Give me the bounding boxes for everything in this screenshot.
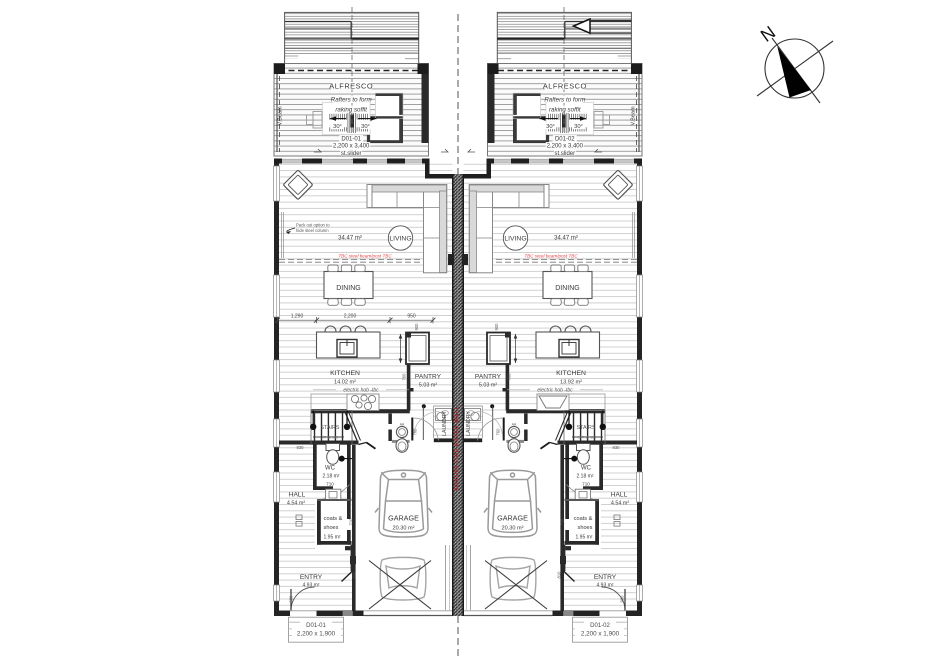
svg-text:Pack out option to: Pack out option to [296, 223, 330, 228]
svg-text:WC: WC [581, 466, 592, 472]
svg-text:LIVING: LIVING [504, 236, 526, 243]
svg-text:20.30 m²: 20.30 m² [501, 526, 523, 532]
svg-text:1,290: 1,290 [291, 314, 304, 320]
svg-text:4.93 m²: 4.93 m² [597, 583, 614, 589]
svg-text:raking soffit: raking soffit [549, 107, 581, 114]
svg-text:34.47 m²: 34.47 m² [338, 236, 362, 242]
svg-text:900: 900 [414, 323, 419, 331]
svg-text:ALFRESCO: ALFRESCO [543, 81, 587, 90]
svg-text:D01-02: D01-02 [555, 137, 575, 143]
svg-text:4.93 m²: 4.93 m² [303, 583, 320, 589]
svg-text:2.18 m²: 2.18 m² [323, 474, 340, 480]
svg-text:4.54 m²: 4.54 m² [287, 501, 305, 507]
svg-text:710: 710 [326, 482, 334, 487]
svg-text:13.92 m²: 13.92 m² [560, 380, 582, 386]
svg-text:electric hob -tbc: electric hob -tbc [343, 388, 379, 394]
svg-text:2,200 x 1,900: 2,200 x 1,900 [297, 630, 336, 637]
svg-text:HALL: HALL [611, 492, 628, 499]
svg-text:30°: 30° [546, 124, 555, 130]
svg-text:760: 760 [402, 373, 407, 381]
svg-text:WC: WC [325, 466, 336, 472]
svg-text:TBC steel beam/post TBC: TBC steel beam/post TBC [524, 254, 578, 259]
svg-text:810: 810 [557, 571, 562, 579]
svg-text:coats &: coats & [324, 516, 343, 522]
svg-text:shoes: shoes [324, 525, 339, 531]
svg-text:830: 830 [613, 445, 621, 450]
svg-text:710: 710 [582, 482, 590, 487]
svg-text:V.Beam: V.Beam [631, 106, 637, 125]
svg-text:5.03 m²: 5.03 m² [479, 383, 497, 389]
svg-text:14R @ 185: 14R @ 185 [320, 436, 338, 440]
svg-text:710: 710 [349, 518, 354, 526]
svg-text:HALL: HALL [289, 492, 306, 499]
svg-text:14.02 m²: 14.02 m² [334, 380, 356, 386]
svg-text:STAIRS: STAIRS [320, 425, 339, 431]
svg-text:AA: AA [511, 423, 516, 427]
svg-text:D01-01: D01-01 [341, 137, 361, 143]
svg-text:GARAGE: GARAGE [497, 514, 528, 523]
svg-text:30°: 30° [574, 124, 583, 130]
svg-text:D01-02: D01-02 [590, 623, 610, 629]
svg-text:D01-01: D01-01 [306, 623, 326, 629]
svg-text:1.95 m²: 1.95 m² [576, 535, 593, 541]
svg-text:LAUNDRY: LAUNDRY [466, 411, 472, 436]
svg-text:710: 710 [560, 518, 565, 526]
svg-text:2,200 x 3,400: 2,200 x 3,400 [547, 144, 584, 150]
svg-text:raking soffit: raking soffit [335, 107, 367, 114]
svg-text:PANTRY: PANTRY [415, 374, 442, 381]
svg-text:TBC steel beam/post TBC: TBC steel beam/post TBC [338, 254, 392, 259]
svg-text:st.slider: st.slider [554, 151, 575, 157]
svg-text:hide steel column: hide steel column [296, 228, 329, 233]
svg-text:2.18 m²: 2.18 m² [577, 474, 594, 480]
svg-text:30°: 30° [361, 124, 370, 130]
svg-text:760: 760 [496, 428, 501, 436]
svg-text:14R @ 185: 14R @ 185 [578, 436, 596, 440]
svg-text:KITCHEN: KITCHEN [556, 370, 586, 377]
svg-text:980: 980 [620, 595, 625, 603]
svg-text:GARAGE: GARAGE [388, 514, 419, 523]
svg-text:90/90/90 FIRE RATED WALL: 90/90/90 FIRE RATED WALL [454, 405, 460, 491]
svg-text:ENTRY: ENTRY [594, 574, 617, 581]
svg-text:760: 760 [413, 428, 418, 436]
svg-text:ENTRY: ENTRY [300, 574, 323, 581]
svg-text:DINING: DINING [336, 285, 361, 292]
svg-text:30°: 30° [333, 124, 342, 130]
svg-text:DINING: DINING [555, 285, 580, 292]
svg-text:20.30 m²: 20.30 m² [392, 526, 414, 532]
svg-text:1.95 m²: 1.95 m² [324, 535, 341, 541]
svg-text:810: 810 [352, 571, 357, 579]
svg-text:900: 900 [494, 323, 499, 331]
svg-text:2,200: 2,200 [344, 314, 357, 320]
svg-text:coats &: coats & [574, 516, 593, 522]
svg-text:LAUNDRY: LAUNDRY [442, 411, 448, 436]
svg-text:STAIRS: STAIRS [576, 425, 595, 431]
svg-text:34.47 m²: 34.47 m² [554, 236, 578, 242]
svg-text:AA: AA [400, 423, 405, 427]
svg-text:PANTRY: PANTRY [475, 374, 502, 381]
svg-text:shoes: shoes [578, 525, 593, 531]
svg-text:2,200 x 3,400: 2,200 x 3,400 [333, 144, 370, 150]
svg-text:950: 950 [407, 314, 416, 320]
svg-text:electric hob -tbc: electric hob -tbc [537, 388, 573, 394]
svg-text:LIVING: LIVING [389, 236, 411, 243]
svg-text:980: 980 [289, 595, 294, 603]
svg-text:2,200 x 1,900: 2,200 x 1,900 [581, 630, 620, 637]
svg-text:830: 830 [297, 445, 305, 450]
svg-text:4.54 m²: 4.54 m² [611, 501, 629, 507]
svg-text:st.slider: st.slider [341, 151, 362, 157]
svg-text:Rafters to form: Rafters to form [544, 97, 585, 104]
svg-text:Rafters to form: Rafters to form [331, 97, 372, 104]
svg-text:5.03 m²: 5.03 m² [419, 383, 437, 389]
svg-text:KITCHEN: KITCHEN [330, 370, 360, 377]
svg-text:ALFRESCO: ALFRESCO [329, 81, 373, 90]
svg-text:760: 760 [507, 373, 512, 381]
svg-text:V.Beam: V.Beam [278, 106, 284, 125]
